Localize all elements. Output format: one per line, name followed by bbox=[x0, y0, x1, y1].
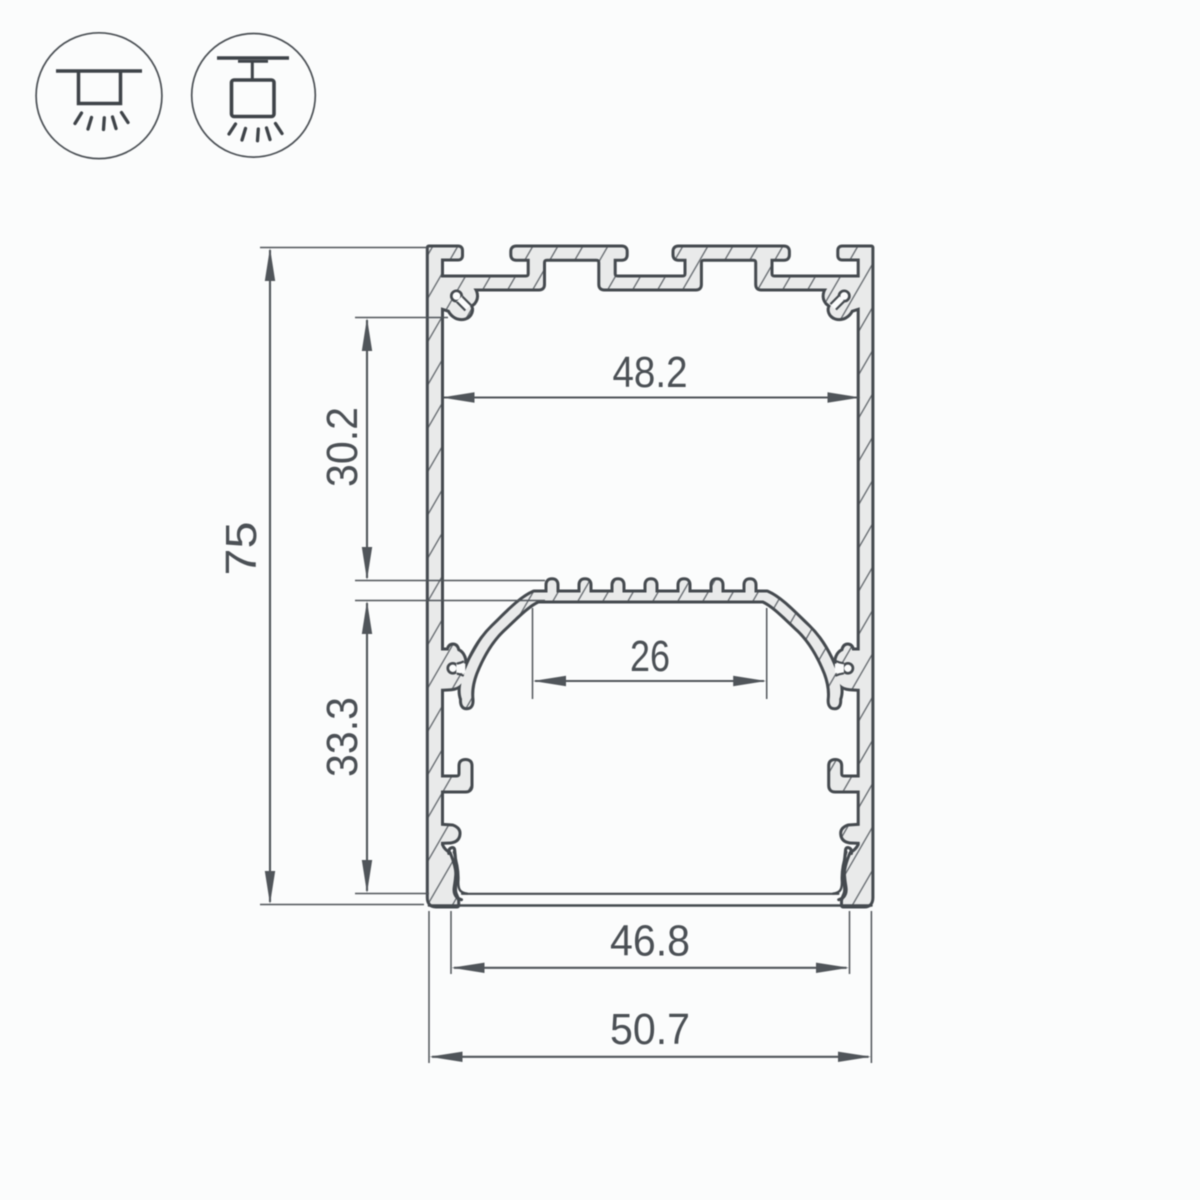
svg-text:48.2: 48.2 bbox=[613, 348, 688, 397]
svg-text:75: 75 bbox=[217, 522, 266, 576]
svg-text:50.7: 50.7 bbox=[610, 1005, 690, 1054]
svg-text:30.2: 30.2 bbox=[318, 407, 367, 487]
svg-text:46.8: 46.8 bbox=[610, 916, 690, 965]
svg-text:26: 26 bbox=[630, 632, 670, 681]
svg-text:33.3: 33.3 bbox=[318, 697, 367, 777]
